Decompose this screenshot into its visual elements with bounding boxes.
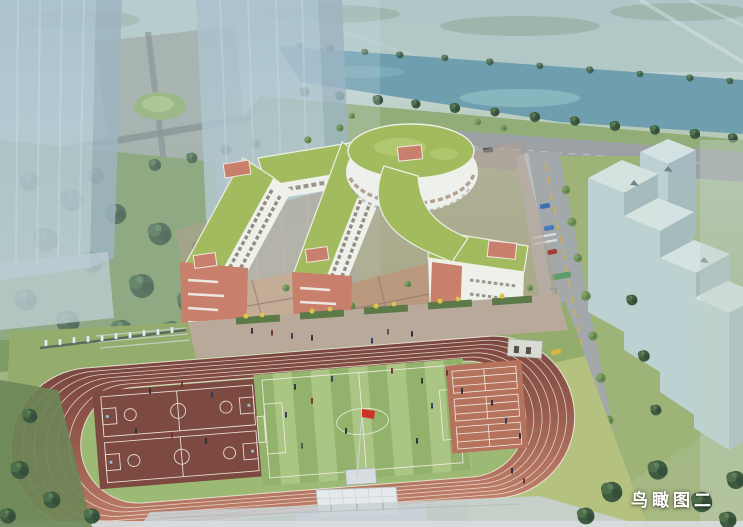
aerial-rendering: 鸟瞰图二 — [0, 0, 743, 527]
river-highlight — [460, 89, 580, 107]
east-haze — [700, 140, 743, 527]
football-pitch — [254, 358, 472, 486]
rendering-canvas — [0, 0, 743, 527]
caption-text: 鸟瞰图二 — [631, 486, 715, 511]
bottom-edge-strip — [0, 521, 743, 527]
tennis-volleyball-courts — [445, 360, 528, 454]
basketball-courts — [92, 378, 267, 489]
